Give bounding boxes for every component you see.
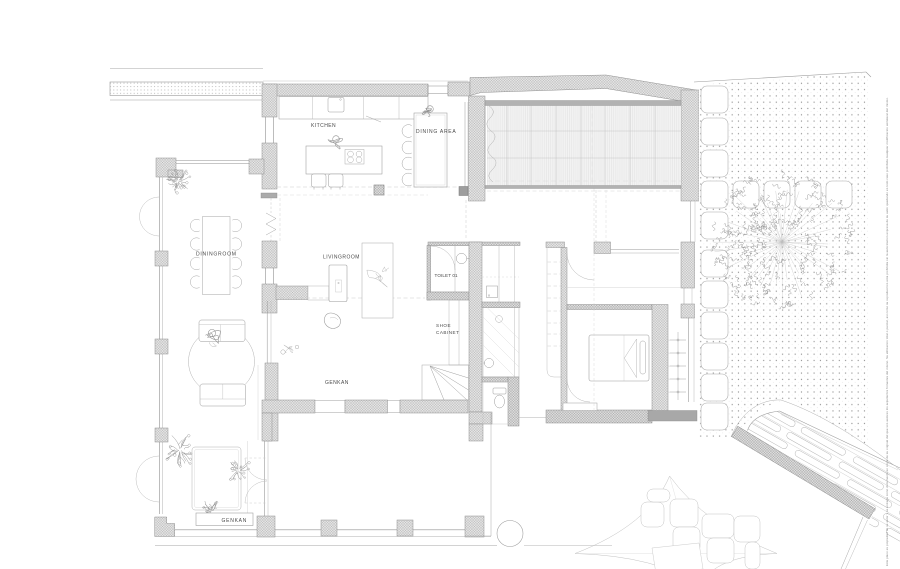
svg-text:SHOE: SHOE: [436, 323, 451, 328]
svg-text:LIVINGROOM: LIVINGROOM: [323, 255, 360, 261]
svg-text:TOILET 01: TOILET 01: [435, 273, 459, 278]
svg-text:DINING AREA: DINING AREA: [416, 129, 456, 135]
svg-text:CABINET: CABINET: [436, 330, 459, 335]
svg-text:DININGROOM: DININGROOM: [196, 252, 237, 258]
svg-text:GENKAN: GENKAN: [325, 380, 349, 386]
svg-text:Este plano es propiedad de su: Este plano es propiedad de su autor y se…: [885, 97, 889, 566]
svg-text:GENKAN: GENKAN: [222, 518, 248, 524]
svg-text:KITCHEN: KITCHEN: [311, 123, 336, 129]
